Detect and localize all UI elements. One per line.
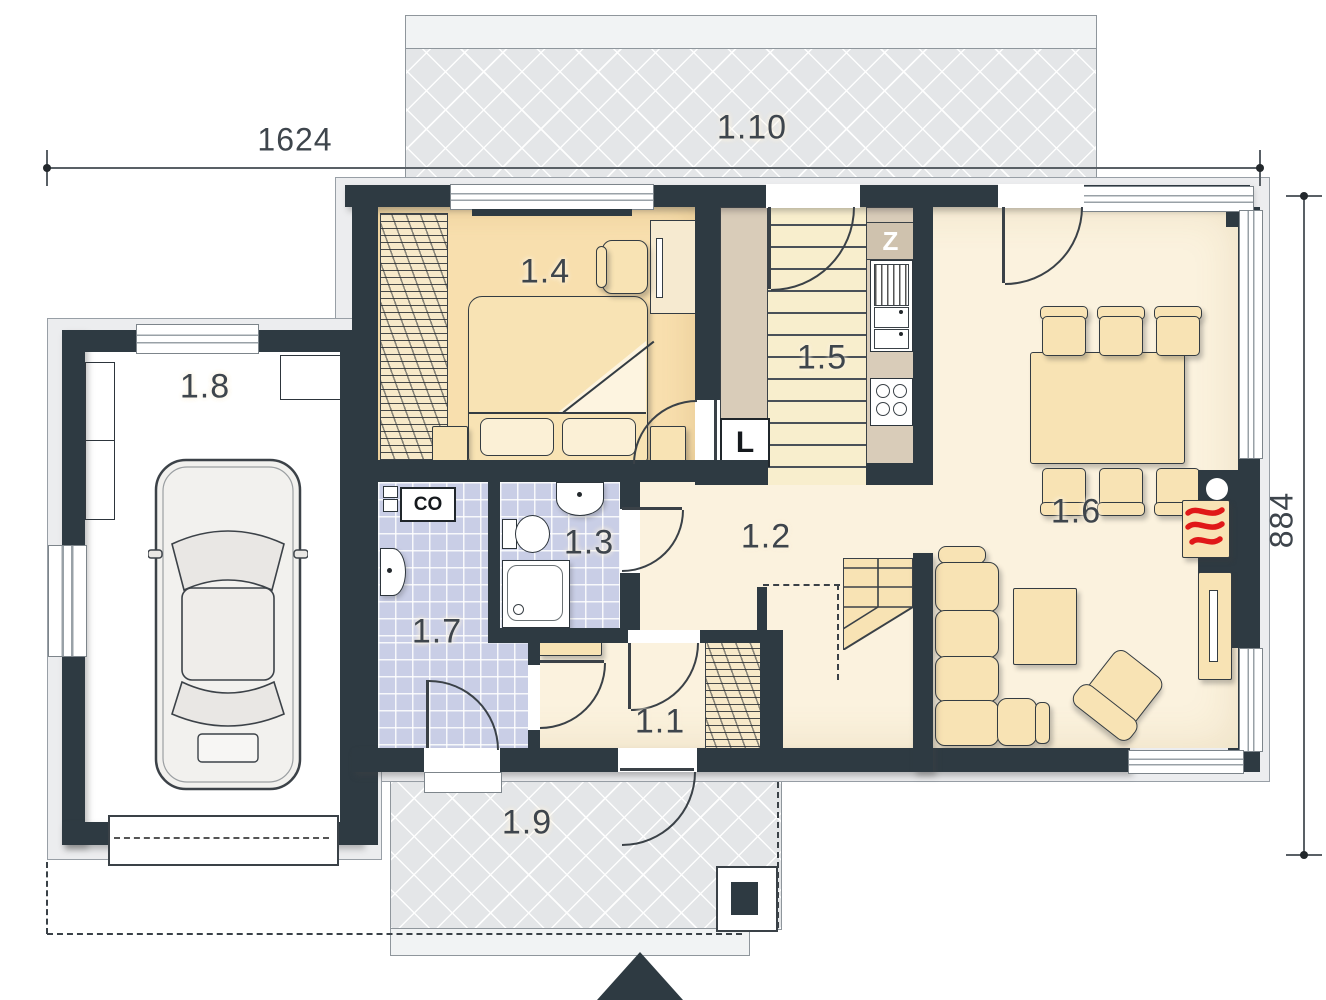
car [148,452,308,797]
desk-monitor [656,238,663,298]
wardrobe-wall-right [760,630,783,748]
vestibule-utility-doorway [528,665,540,730]
sink-tap-1 [899,310,903,314]
dim-right-dot-top [1300,192,1308,200]
entrance-arrow-icon [597,952,683,1000]
chimney-flue [1206,478,1228,500]
nightstand-left [432,426,468,462]
desk-chair-back [596,246,607,288]
sink-basin-1 [874,307,909,328]
garage-window-front [136,324,259,354]
staircase [843,558,913,650]
terrace-mat [731,882,758,915]
utility-washbasin-tap [387,568,392,573]
utility-washbasin [380,548,406,596]
fireplace-flames-icon [1184,503,1226,553]
bedroom-window [450,184,654,210]
utility-vestibule-wall-upper [528,642,540,665]
bedroom-wardrobe [380,213,448,460]
bathroom-wall-left [488,482,500,642]
boiler-box: CO [400,487,456,522]
living-window-bottom [1128,750,1244,774]
counter-stub-right [866,463,933,485]
room-label-vestibule: 1.1 [635,703,685,742]
garage-window-left [48,545,87,657]
sink-box: Z [866,222,915,260]
shower-drain [513,604,524,615]
pillow-left [480,418,554,456]
burner-3 [876,402,890,416]
bathroom-wall-bottom [488,628,628,643]
utility-meter-1 [383,486,398,498]
burner-2 [893,384,907,398]
garage-shelf [280,355,342,400]
bed-sheet-line [468,412,646,414]
kitchen-wall-right [913,185,933,485]
room-label-bedroom: 1.4 [520,253,570,292]
tv-bench-slot [1209,590,1218,662]
sofa-armrest-right [1035,702,1050,744]
stair-walkline-dashed [837,584,839,680]
utility-vestibule-wall-lower [528,730,540,748]
dim-right-dot-bottom [1300,851,1308,859]
dim-top-dot-right [1256,164,1264,172]
driveway-dashed-edge [46,862,48,934]
room-label-living: 1.6 [1051,493,1101,532]
sink-tap-2 [899,332,903,336]
room-label-utility: 1.7 [412,613,462,652]
sofa-wall [913,553,933,772]
floor-plan: L Z [0,0,1326,1000]
burner-4 [893,402,907,416]
bedroom-door-leaf [714,400,717,460]
hall-vestibule-doorway [628,630,700,643]
dining-chair-top-3 [1156,316,1200,356]
room-label-terrace-front: 1.9 [502,804,552,843]
sofa-cushion-1 [935,562,999,612]
pillow-right [562,418,636,456]
front-door-leaf [620,768,694,771]
sofa-cushion-corner [935,700,999,746]
bedroom-radiator [472,209,632,216]
dim-width-label: 1624 [257,122,332,159]
utility-meter-2 [383,499,398,512]
room-label-bathroom: 1.3 [564,524,614,563]
sofa-cushion-3 [935,656,999,702]
utility-exterior-doorway [424,748,500,772]
living-corner-window-right [1239,210,1263,459]
garage-door-dashed [114,837,329,839]
fireplace [1182,500,1230,558]
room-label-terrace-rear: 1.10 [717,109,787,148]
room-label-kitchen: 1.5 [797,339,847,378]
counter-stub-left [695,460,768,485]
dim-height-label: 884 [1264,492,1301,548]
dim-right-line [1303,196,1305,855]
dining-chair-top-1 [1042,316,1086,356]
dining-chair-bottom-2-back [1097,502,1145,516]
bedroom-wall-right [695,185,720,400]
boiler-label: CO [414,494,443,516]
living-terrace-doorway [998,184,1084,208]
kitchen-terrace-doorway [766,184,860,208]
terrace-rear-step [405,15,1097,49]
bathroom-washbasin-tap [577,492,582,497]
room-label-hall: 1.2 [741,518,791,557]
sink-basin-2 [874,329,909,349]
stair-wall-stub [757,587,767,632]
fridge-label: L [736,426,754,460]
dining-chair-top-2 [1099,316,1143,356]
desk-chair [602,240,648,294]
bathroom-wall-right-upper [620,482,640,509]
sink-drainer [874,264,909,306]
sofa-cushion-right [997,698,1037,746]
living-corner-window-top [1082,186,1254,212]
sink-label: Z [883,226,899,257]
sofa-cushion-2 [935,610,999,658]
room-label-garage: 1.8 [180,368,230,407]
coffee-table [1013,588,1077,665]
driveway-dashed-line [47,933,742,935]
stair-opening-dashed [763,584,840,586]
garage-cabinet-2 [85,440,115,520]
dim-top-dot-left [43,164,51,172]
cooktop [870,378,913,426]
living-window-right-lower [1239,648,1263,752]
dining-table [1030,352,1185,464]
bathroom-washbasin [556,482,604,516]
dim-top-line [47,167,1260,169]
garage-door [108,815,339,866]
toilet-bowl [515,515,550,553]
hall-wardrobe [705,633,762,757]
utility-door-step [424,772,502,793]
burner-1 [876,384,890,398]
garage-cabinet-1 [85,362,115,442]
